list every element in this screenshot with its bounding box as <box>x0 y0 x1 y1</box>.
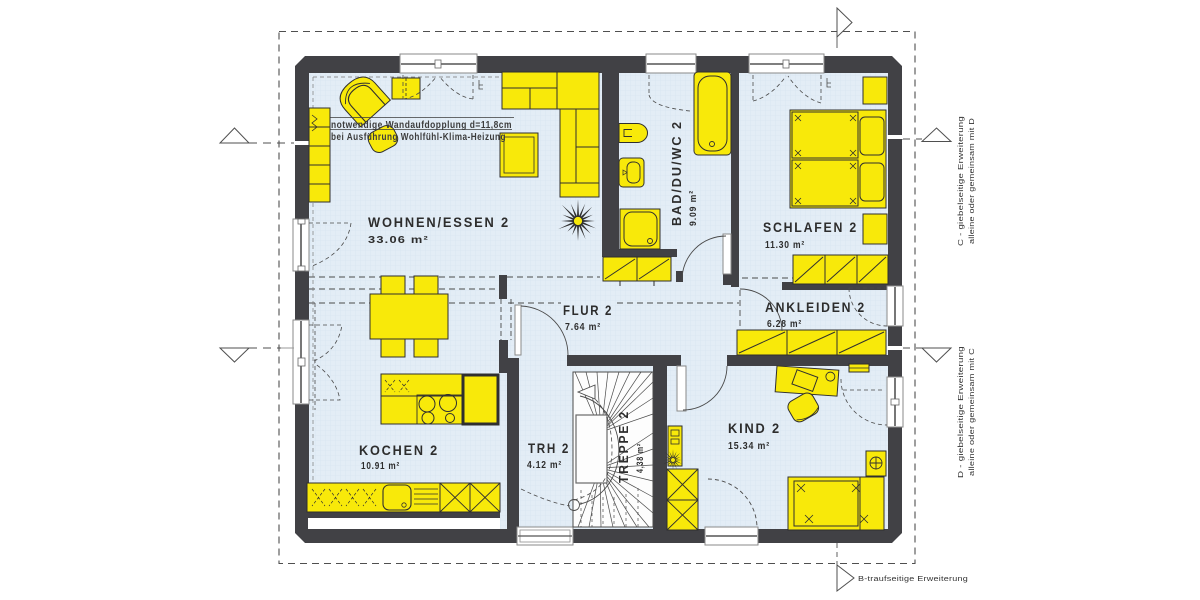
svg-text:4,38 m²: 4,38 m² <box>635 443 645 473</box>
svg-text:11.30 m²: 11.30 m² <box>765 239 805 251</box>
svg-text:9.09 m²: 9.09 m² <box>688 190 699 226</box>
svg-text:bei Ausführung Wohlfühl-Klima-: bei Ausführung Wohlfühl-Klima-Heizung <box>331 132 506 143</box>
svg-text:TREPPE 2: TREPPE 2 <box>616 410 631 483</box>
svg-text:10.91 m²: 10.91 m² <box>361 460 400 472</box>
svg-text:7.64 m²: 7.64 m² <box>565 321 601 333</box>
svg-text:SCHLAFEN 2: SCHLAFEN 2 <box>763 219 858 235</box>
svg-text:KOCHEN 2: KOCHEN 2 <box>359 442 439 458</box>
svg-text:15.34 m²: 15.34 m² <box>728 440 770 452</box>
svg-text:4.12 m²: 4.12 m² <box>527 459 562 471</box>
svg-text:FLUR 2: FLUR 2 <box>563 302 613 318</box>
svg-text:ANKLEIDEN 2: ANKLEIDEN 2 <box>765 299 866 315</box>
svg-text:6.28 m²: 6.28 m² <box>767 318 802 330</box>
svg-text:WOHNEN/ESSEN 2: WOHNEN/ESSEN 2 <box>368 214 510 230</box>
svg-text:TRH 2: TRH 2 <box>528 440 570 456</box>
svg-text:KIND 2: KIND 2 <box>728 420 781 436</box>
svg-text:BAD/DU/WC 2: BAD/DU/WC 2 <box>669 120 684 226</box>
svg-text:B-traufseitige Erweiterung: B-traufseitige Erweiterung <box>858 574 968 583</box>
svg-text:33.06 m²: 33.06 m² <box>368 234 429 246</box>
